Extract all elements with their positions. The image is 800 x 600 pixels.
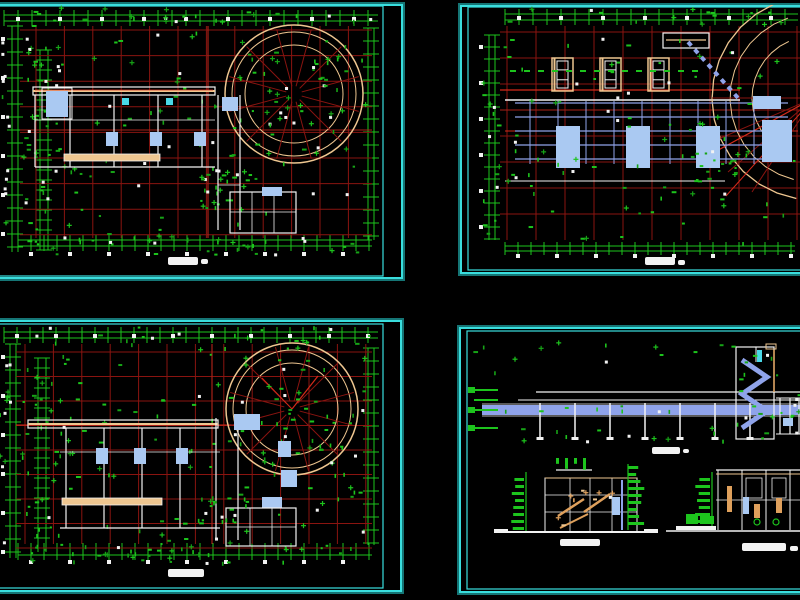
- sheet-sections[interactable]: [457, 325, 800, 595]
- title-mark: [683, 449, 689, 453]
- title-mark: [645, 257, 675, 265]
- floor-plan-drawing: [0, 318, 404, 594]
- title-mark: [560, 539, 600, 546]
- title-mark: [201, 259, 208, 264]
- building-sections-drawing: [457, 325, 800, 595]
- sheet-floor-plan-2[interactable]: [0, 318, 404, 594]
- title-mark: [652, 447, 680, 454]
- title-mark: [790, 546, 798, 551]
- title-mark: [168, 569, 204, 577]
- model-space-background: [0, 0, 800, 600]
- roof-framing-plan-drawing: [458, 3, 800, 276]
- sheet-floor-plan-1[interactable]: [0, 2, 405, 281]
- floor-plan-drawing: [0, 2, 405, 281]
- title-mark: [742, 543, 786, 551]
- sheet-roof-framing-plan[interactable]: [458, 3, 800, 276]
- title-mark: [678, 260, 685, 265]
- title-mark: [168, 257, 198, 265]
